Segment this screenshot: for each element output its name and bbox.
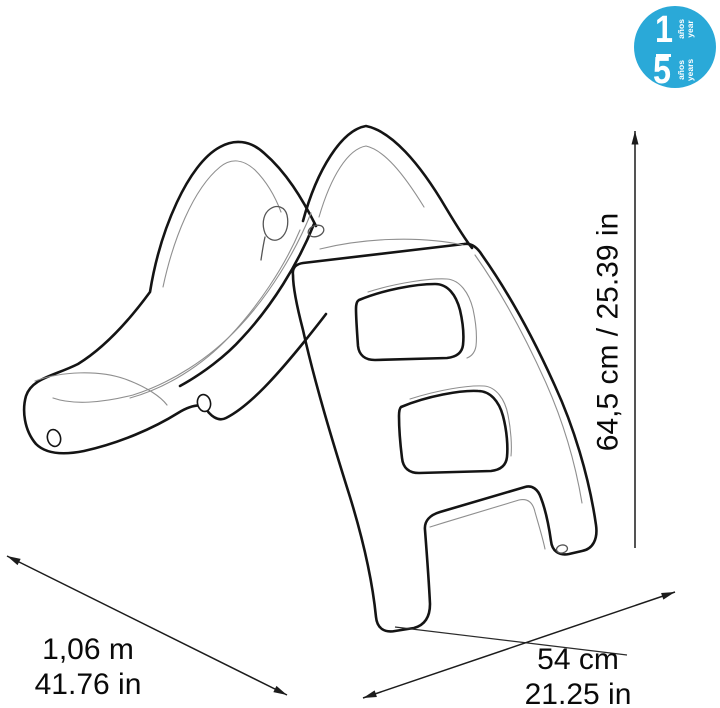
- foot-detail: [556, 544, 568, 554]
- age-range-badge: 1 años year 5 años years: [634, 6, 716, 88]
- handle-cutout-tail: [261, 237, 265, 260]
- depth-dimension-label: 54 cm 21.25 in: [525, 642, 632, 708]
- slide-right-hump: [303, 126, 472, 248]
- age-max-unit: años years: [677, 54, 695, 86]
- length-imperial-value: 41.76 in: [35, 667, 142, 702]
- ladder-inner-right-line: [475, 255, 582, 503]
- step-opening-2: [399, 391, 507, 473]
- right-hump-inner-line: [319, 146, 424, 217]
- screw-hole-left: [46, 428, 63, 448]
- depth-metric-value: 54 cm: [525, 642, 632, 677]
- length-dimension-label: 1,06 m 41.76 in: [35, 632, 142, 702]
- slide-near-rail: [180, 224, 314, 386]
- leg-gap-inner-line: [430, 500, 545, 549]
- handle-cutout: [263, 207, 288, 241]
- ladder-panel: [293, 244, 597, 632]
- age-max-unit-en: years: [686, 54, 695, 86]
- depth-imperial-value: 21.25 in: [525, 677, 632, 708]
- length-metric-value: 1,06 m: [35, 632, 142, 667]
- age-max-number: 5: [653, 52, 671, 90]
- age-min-number: 1: [655, 11, 673, 49]
- chute-channel-line-2: [130, 230, 300, 398]
- opening-2-echo-line: [410, 386, 511, 456]
- slide-chute-outline: [24, 142, 326, 453]
- chute-channel-line-1: [53, 213, 311, 402]
- base-rim-line: [35, 373, 167, 405]
- product-dimension-diagram: 64,5 cm / 25.39 in 1,06 m 41.76 in 54 cm…: [0, 0, 720, 708]
- age-min-unit-en: year: [686, 13, 695, 45]
- step-opening-1: [356, 284, 463, 360]
- height-dimension-label: 64,5 cm / 25.39 in: [591, 213, 626, 451]
- age-min-unit: años year: [677, 13, 695, 45]
- screw-hole-right: [196, 393, 212, 412]
